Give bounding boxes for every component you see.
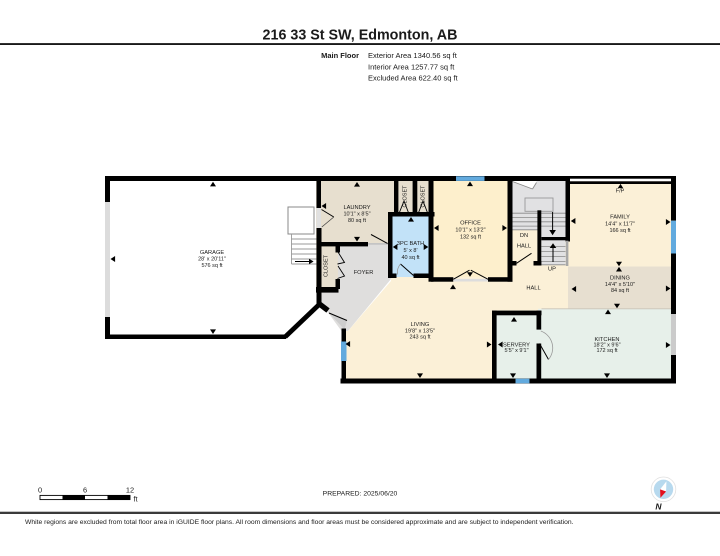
svg-text:LIVING: LIVING	[411, 322, 430, 328]
svg-text:14'4" x 5'10": 14'4" x 5'10"	[605, 282, 635, 288]
svg-text:12: 12	[126, 486, 134, 495]
svg-text:White regions are excluded fro: White regions are excluded from total fl…	[25, 519, 574, 526]
svg-text:5' x 8': 5' x 8'	[403, 248, 417, 254]
svg-text:CLOSET: CLOSET	[324, 254, 330, 277]
svg-text:243 sq ft: 243 sq ft	[409, 335, 431, 341]
svg-text:80 sq ft: 80 sq ft	[348, 218, 367, 224]
svg-text:N: N	[655, 502, 662, 512]
svg-text:216 33 St SW, Edmonton, AB: 216 33 St SW, Edmonton, AB	[263, 28, 458, 44]
svg-text:F/P: F/P	[616, 188, 625, 194]
svg-text:FOYER: FOYER	[354, 270, 374, 276]
svg-text:ft: ft	[134, 495, 138, 504]
svg-text:166 sq ft: 166 sq ft	[609, 228, 631, 234]
svg-text:CLOSET: CLOSET	[421, 185, 427, 208]
svg-text:84 sq ft: 84 sq ft	[611, 288, 630, 294]
svg-text:CLOSET: CLOSET	[403, 185, 409, 208]
svg-text:19'8" x 13'5": 19'8" x 13'5"	[405, 328, 435, 334]
svg-text:OFFICE: OFFICE	[460, 221, 481, 227]
svg-text:LAUNDRY: LAUNDRY	[343, 205, 370, 211]
svg-text:GARAGE: GARAGE	[200, 250, 225, 256]
svg-text:HALL: HALL	[526, 285, 540, 291]
svg-text:HALL: HALL	[517, 244, 531, 250]
svg-text:40 sq ft: 40 sq ft	[401, 255, 420, 261]
svg-text:10'1" x 8'5": 10'1" x 8'5"	[343, 212, 370, 218]
svg-text:Main Floor: Main Floor	[321, 51, 359, 60]
svg-text:172 sq ft: 172 sq ft	[596, 348, 618, 354]
svg-text:3PC BATH: 3PC BATH	[397, 241, 424, 247]
svg-text:132 sq ft: 132 sq ft	[460, 235, 482, 241]
svg-text:Interior Area 1257.77 sq ft: Interior Area 1257.77 sq ft	[368, 62, 455, 71]
svg-text:0: 0	[38, 486, 42, 495]
svg-text:28' x 20'11": 28' x 20'11"	[198, 256, 226, 262]
svg-text:FAMILY: FAMILY	[610, 215, 630, 221]
svg-text:5'5" x 9'1": 5'5" x 9'1"	[504, 348, 528, 354]
svg-text:10'1" x 13'2": 10'1" x 13'2"	[455, 228, 485, 234]
svg-text:Excluded Area 622.40 sq ft: Excluded Area 622.40 sq ft	[368, 74, 459, 83]
svg-text:DINING: DINING	[610, 276, 630, 282]
svg-text:UP: UP	[548, 267, 556, 273]
svg-text:DN: DN	[520, 233, 528, 239]
svg-text:Exterior Area 1340.56 sq ft: Exterior Area 1340.56 sq ft	[368, 51, 458, 60]
svg-text:PREPARED: 2025/06/20: PREPARED: 2025/06/20	[323, 491, 398, 498]
svg-text:576 sq ft: 576 sq ft	[201, 263, 223, 269]
svg-text:14'4" x 11'7": 14'4" x 11'7"	[605, 222, 635, 228]
svg-text:6: 6	[83, 486, 87, 495]
